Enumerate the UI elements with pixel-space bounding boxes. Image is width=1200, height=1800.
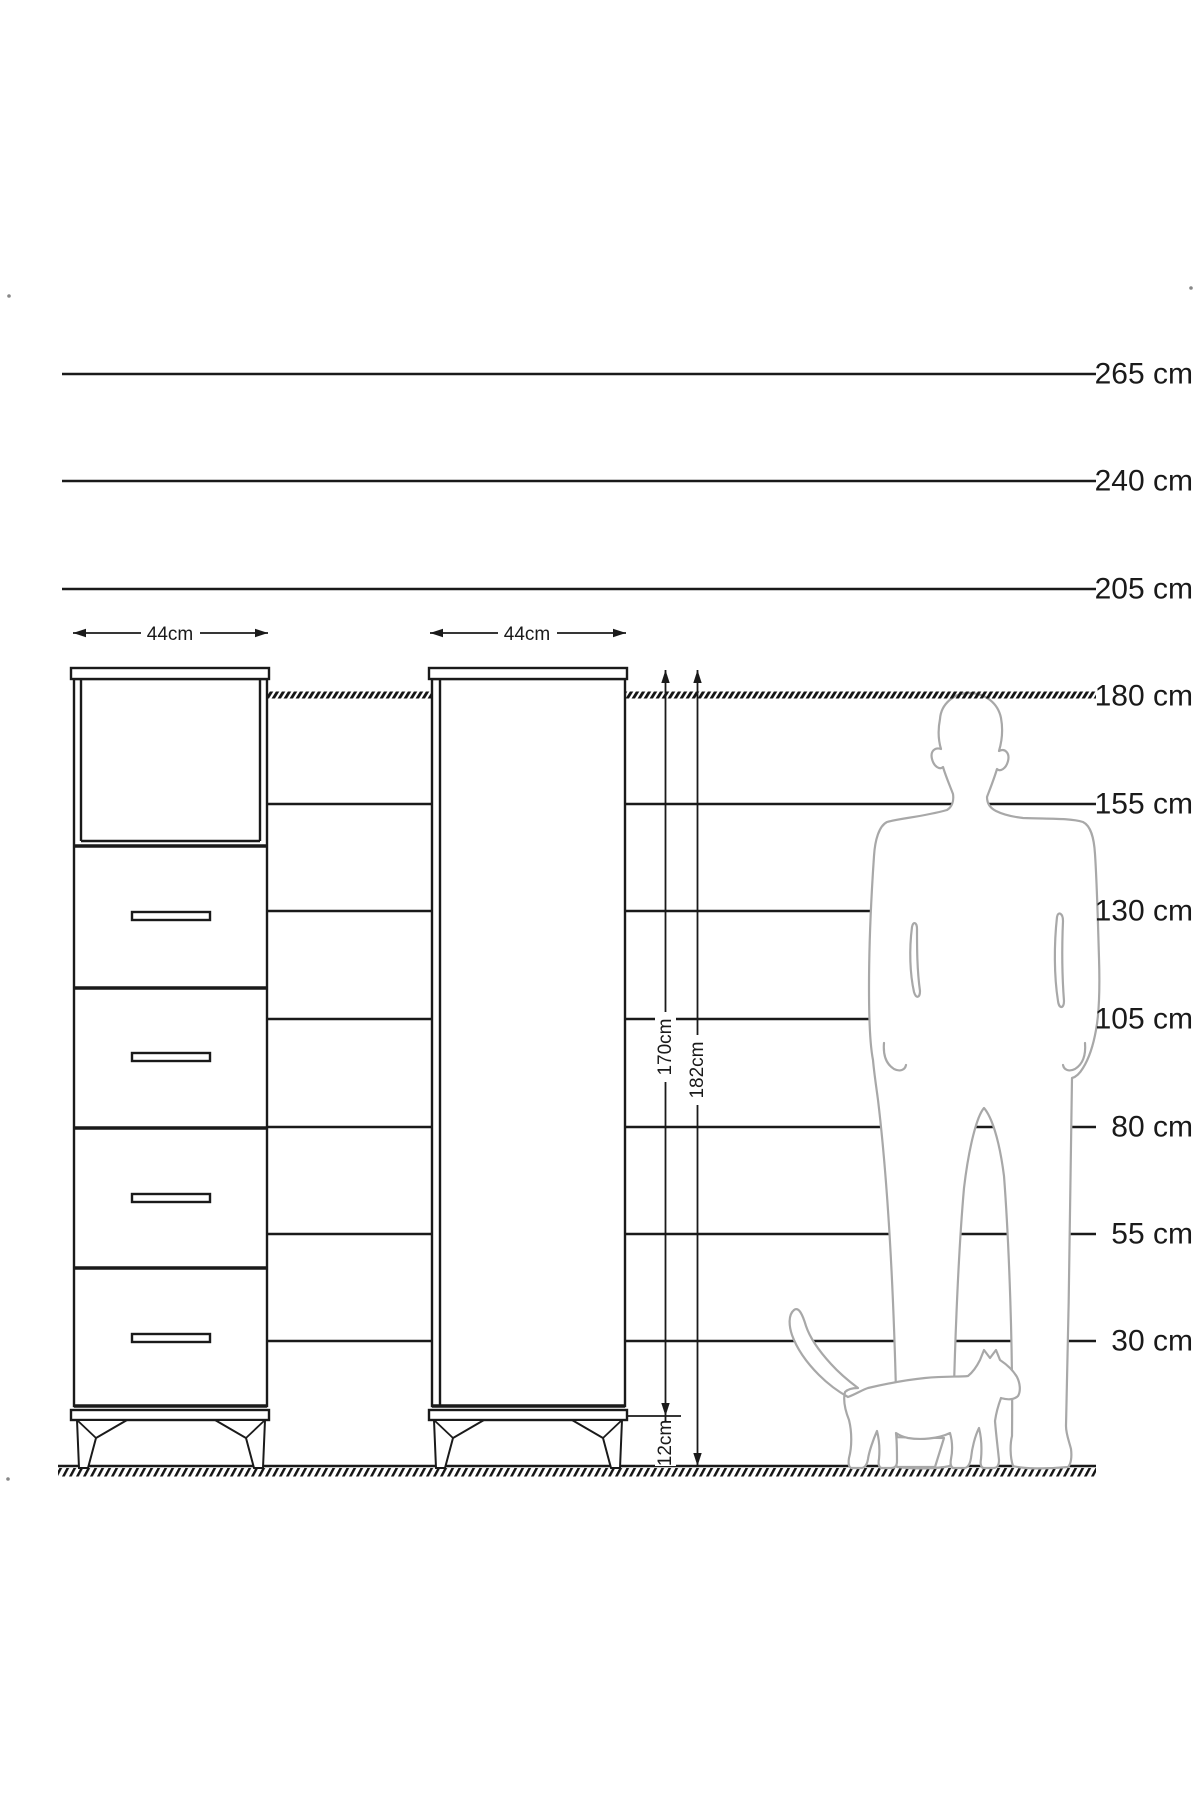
cabinet-front-body	[74, 679, 267, 1406]
cabinet-front-view	[71, 668, 269, 1468]
scale-label-265: 265 cm	[1095, 358, 1193, 391]
scale-label-155: 155 cm	[1095, 788, 1193, 821]
cabinet-side-view	[429, 668, 627, 1468]
artifact-dot-right	[1189, 286, 1193, 290]
width-dim-right-arrow-start	[430, 629, 443, 637]
technical-drawing: 44cm 44cm 170cm 12cm 182cm 265 cm 240 cm…	[0, 0, 1200, 1800]
body-height-arrow-bottom	[661, 1403, 669, 1416]
drawer-handle-1	[132, 912, 210, 920]
width-dim-right-label: 44cm	[504, 624, 550, 645]
artifact-dot-left	[7, 294, 11, 298]
cabinet-side-body	[432, 679, 625, 1406]
body-height-arrow-top	[661, 670, 669, 683]
scale-label-130: 130 cm	[1095, 895, 1193, 928]
scale-label-30: 30 cm	[1111, 1325, 1193, 1358]
width-dimension-left: 44cm	[73, 620, 268, 646]
drawer-handle-3	[132, 1194, 210, 1202]
technical-drawing-page: 44cm 44cm 170cm 12cm 182cm 265 cm 240 cm…	[0, 0, 1200, 1800]
scale-line-180-hatched	[267, 692, 1096, 699]
artifact-dot-bottom-left	[6, 1477, 10, 1481]
width-dimension-right: 44cm	[430, 620, 626, 646]
cabinet-front-bottom-board	[71, 1410, 269, 1420]
width-dim-left-arrow-end	[255, 629, 268, 637]
man-right-arm-gap	[1055, 914, 1064, 1007]
scale-label-180: 180 cm	[1095, 680, 1193, 713]
drawer-handle-4	[132, 1334, 210, 1342]
width-dim-right-arrow-end	[613, 629, 626, 637]
scale-label-105: 105 cm	[1095, 1003, 1193, 1036]
total-height-arrow-top	[693, 670, 701, 683]
total-height-arrow-bottom	[693, 1453, 701, 1466]
scale-label-55: 55 cm	[1111, 1218, 1193, 1251]
width-dim-left-label: 44cm	[147, 624, 193, 645]
scale-label-205: 205 cm	[1095, 573, 1193, 606]
scale-label-80: 80 cm	[1111, 1111, 1193, 1144]
ground-hatch	[58, 1468, 1096, 1477]
cabinet-side-top-board	[429, 668, 627, 679]
cabinet-side-legs	[434, 1420, 622, 1468]
cabinet-front-legs	[77, 1420, 265, 1468]
drawer-handle-2	[132, 1053, 210, 1061]
height-scale-labels: 265 cm 240 cm 205 cm 180 cm 155 cm 130 c…	[1095, 358, 1193, 1358]
cabinet-front-top-board	[71, 668, 269, 679]
scale-label-240: 240 cm	[1095, 465, 1193, 498]
total-height-label: 182cm	[687, 1041, 708, 1098]
cabinet-side-bottom-board	[429, 1410, 627, 1420]
body-height-label: 170cm	[655, 1018, 676, 1075]
leg-height-label: 12cm	[655, 1420, 676, 1466]
height-dimensions: 170cm 12cm 182cm	[626, 670, 708, 1466]
width-dim-left-arrow-start	[73, 629, 86, 637]
